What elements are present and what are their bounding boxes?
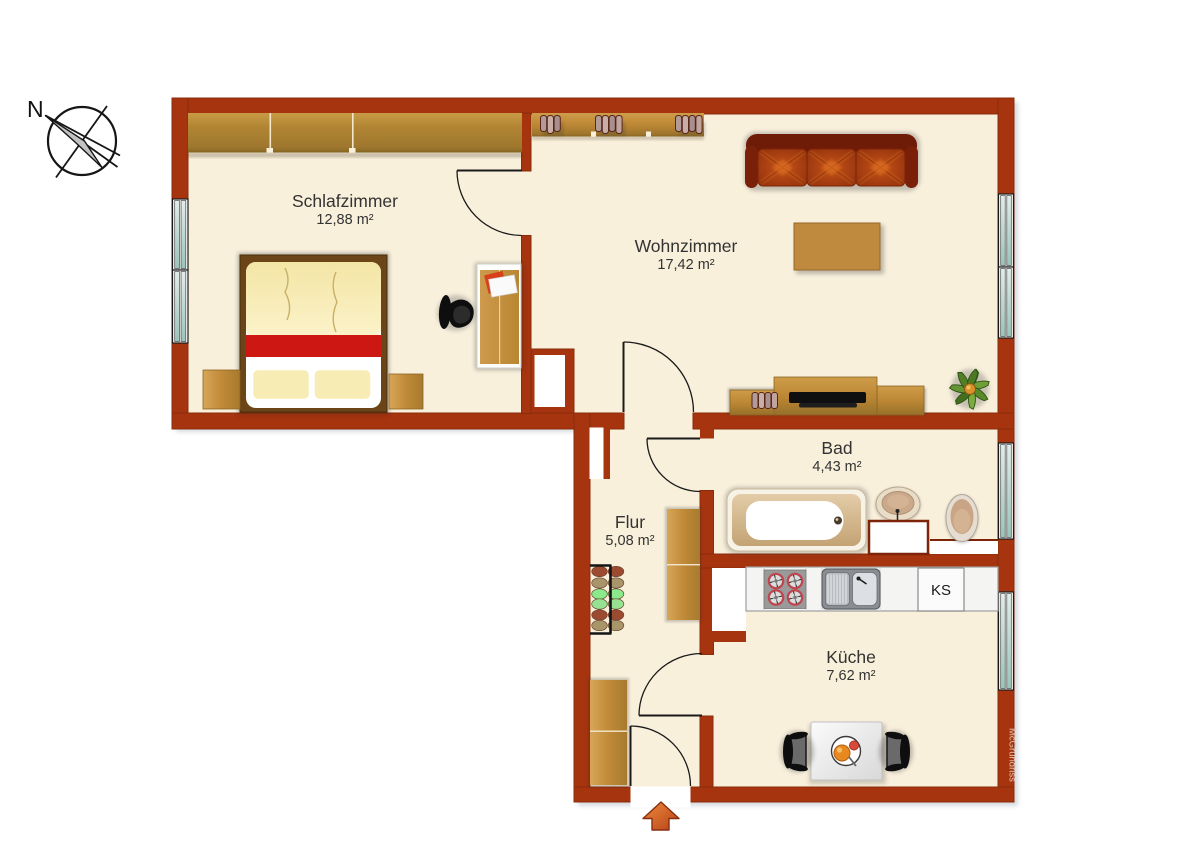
svg-text:Flur: Flur: [615, 512, 645, 532]
svg-text:12,88 m²: 12,88 m²: [316, 212, 373, 228]
svg-text:N: N: [27, 96, 44, 122]
svg-text:McGrundriss: McGrundriss: [1007, 728, 1018, 782]
svg-text:17,42 m²: 17,42 m²: [657, 257, 714, 273]
svg-text:7,62 m²: 7,62 m²: [826, 668, 875, 684]
svg-text:Bad: Bad: [821, 438, 852, 458]
svg-text:4,43 m²: 4,43 m²: [812, 459, 861, 475]
svg-text:5,08 m²: 5,08 m²: [605, 533, 654, 549]
svg-text:Schlafzimmer: Schlafzimmer: [292, 191, 398, 211]
svg-text:Wohnzimmer: Wohnzimmer: [635, 236, 738, 256]
svg-text:Küche: Küche: [826, 647, 876, 667]
svg-text:KS: KS: [931, 582, 951, 599]
